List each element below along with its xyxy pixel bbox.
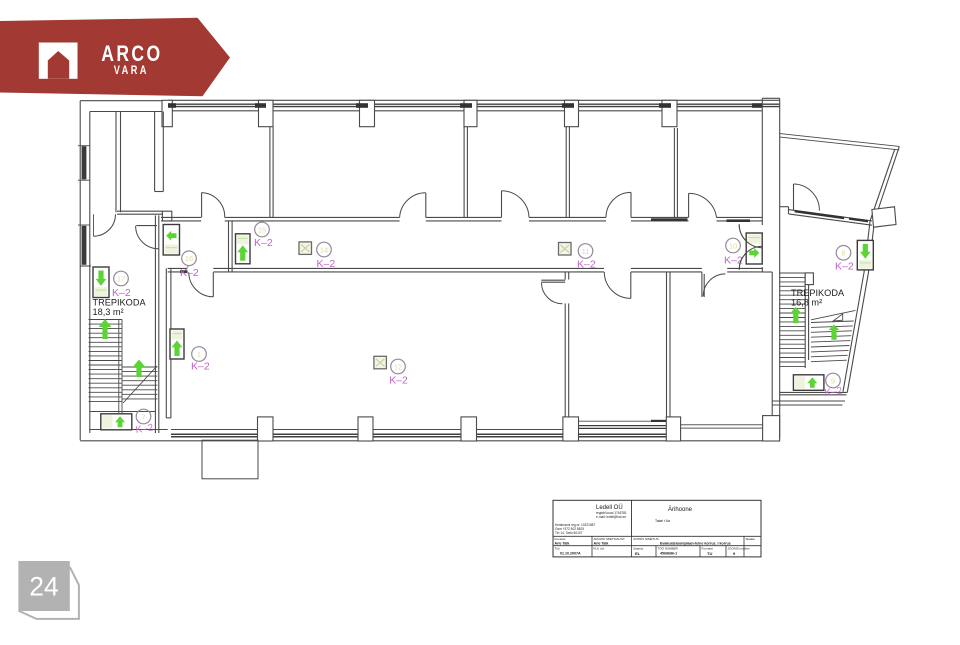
- svg-text:VARA: VARA: [114, 65, 149, 77]
- svg-text:K–2: K–2: [180, 267, 199, 279]
- svg-text:TU: TU: [707, 551, 712, 556]
- svg-text:12: 12: [394, 362, 402, 371]
- svg-text:Töö: Töö: [555, 547, 561, 551]
- svg-text:1: 1: [197, 350, 201, 359]
- svg-text:K–2: K–2: [317, 258, 336, 270]
- svg-text:TÖÖ NUMBER: TÖÖ NUMBER: [658, 547, 679, 551]
- svg-text:Arle Talk: Arle Talk: [555, 542, 570, 546]
- svg-text:Ledell OÜ: Ledell OÜ: [596, 504, 623, 511]
- svg-text:K–2: K–2: [577, 259, 596, 271]
- svg-text:Ärihoone: Ärihoone: [668, 506, 693, 513]
- svg-text:9: 9: [831, 376, 835, 385]
- svg-text:Evakuatsiooniplaan-teine korru: Evakuatsiooniplaan-teine korrus. I korru…: [660, 542, 731, 546]
- svg-text:Koostas: Koostas: [555, 537, 566, 541]
- svg-text:Tln 14, Tartu 50107: Tln 14, Tartu 50107: [555, 531, 583, 535]
- svg-text:KUI, töö: KUI, töö: [594, 547, 605, 551]
- svg-text:18,3 m²: 18,3 m²: [93, 307, 124, 317]
- svg-text:TREPIKODA: TREPIKODA: [791, 288, 845, 298]
- svg-text:11: 11: [582, 247, 590, 256]
- svg-text:01.10.2007A: 01.10.2007A: [560, 552, 581, 556]
- svg-text:17: 17: [117, 274, 125, 283]
- svg-text:15: 15: [258, 225, 266, 234]
- svg-text:JOONIS NIMETUS: JOONIS NIMETUS: [633, 537, 659, 541]
- svg-text:Staatus: Staatus: [633, 547, 644, 551]
- svg-text:K–2: K–2: [254, 237, 273, 249]
- svg-text:16,8 m²: 16,8 m²: [791, 298, 822, 308]
- svg-text:K–2: K–2: [835, 261, 854, 273]
- svg-text:7: 7: [141, 412, 145, 421]
- svg-text:Formaat: Formaat: [702, 547, 713, 551]
- svg-text:Tatari t 6a: Tatari t 6a: [655, 519, 670, 523]
- svg-text:10: 10: [729, 241, 737, 250]
- svg-text:TREPIKODA: TREPIKODA: [93, 298, 147, 308]
- svg-text:Skaala: Skaala: [746, 537, 756, 541]
- svg-text:8: 8: [841, 249, 845, 258]
- svg-text:K–2: K–2: [389, 375, 408, 387]
- svg-text:14: 14: [320, 245, 328, 254]
- svg-text:4568686-1: 4568686-1: [660, 552, 677, 556]
- svg-text:K–2: K–2: [191, 361, 210, 373]
- svg-text:16: 16: [185, 254, 193, 263]
- svg-text:ARCO: ARCO: [101, 41, 162, 66]
- svg-text:24: 24: [29, 572, 58, 602]
- svg-text:e-mail: ledell@hot.ee: e-mail: ledell@hot.ee: [596, 515, 626, 519]
- svg-text:Arle Talk: Arle Talk: [594, 542, 609, 546]
- svg-text:JOONIS number: JOONIS number: [728, 547, 750, 551]
- svg-text:EL: EL: [635, 551, 641, 556]
- svg-text:ARÜOW SPETSIALIST: ARÜOW SPETSIALIST: [594, 537, 626, 541]
